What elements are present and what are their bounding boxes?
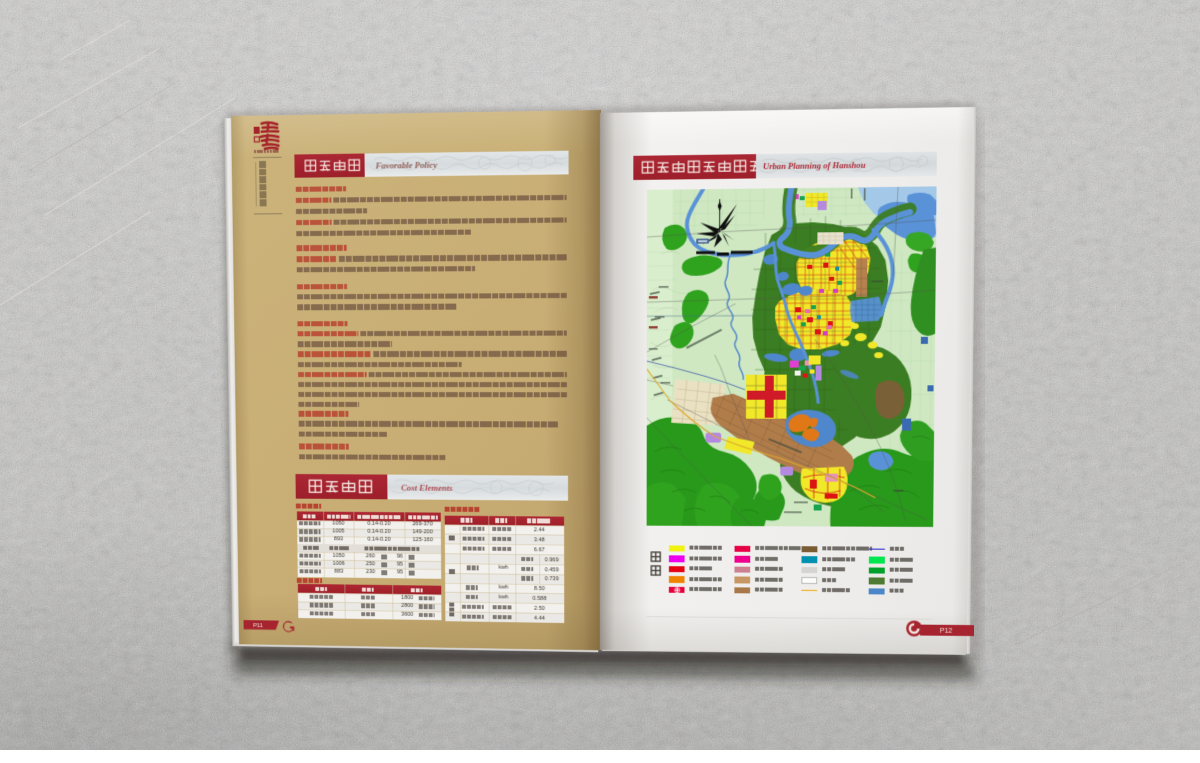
- svg-text:P12: P12: [940, 628, 953, 635]
